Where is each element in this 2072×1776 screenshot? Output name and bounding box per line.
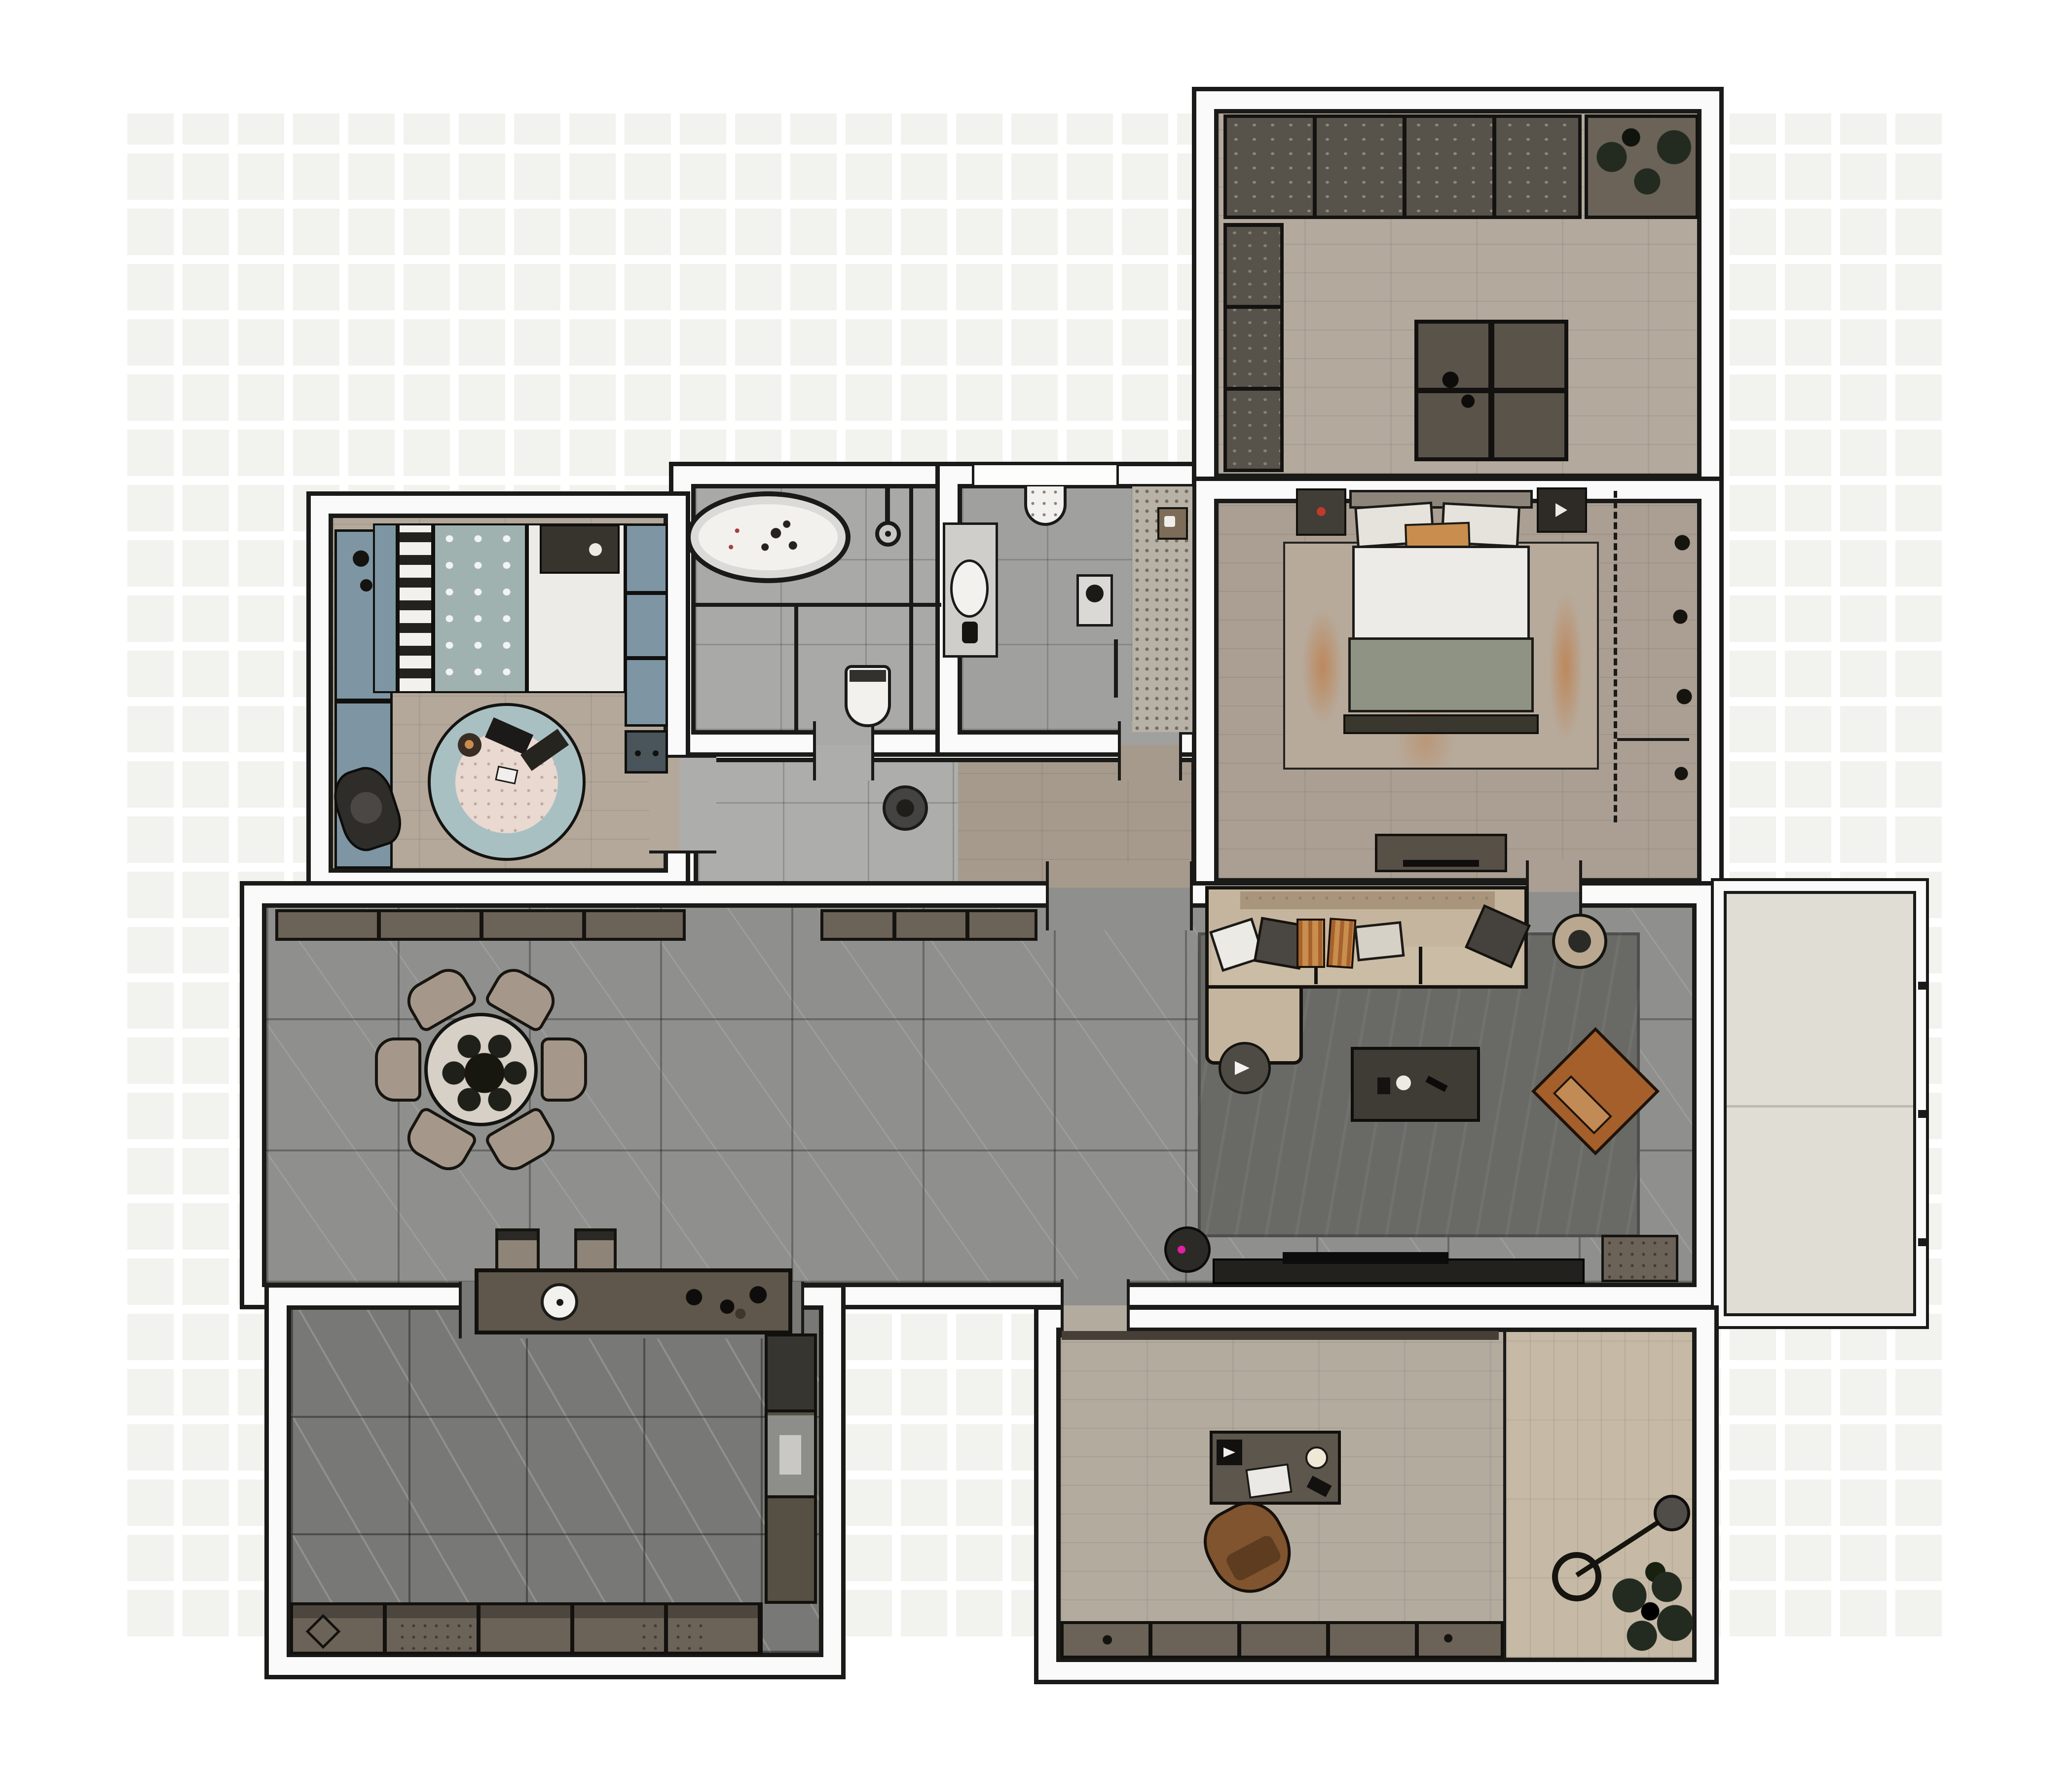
pouf[interactable]	[1219, 1042, 1271, 1094]
round-dining-table[interactable]	[424, 1013, 538, 1126]
potted-plant[interactable]	[1598, 1553, 1702, 1659]
tv-screen	[1283, 1252, 1448, 1264]
shower-head-icon	[875, 521, 901, 547]
sideboard-right[interactable]	[820, 909, 1037, 941]
tray-cup	[589, 543, 602, 556]
side-table-plant	[1568, 930, 1591, 953]
cabinet-speckle-2	[638, 1620, 703, 1650]
coffee-cup	[1396, 1075, 1411, 1090]
kitchen-island[interactable]	[475, 1268, 792, 1334]
media-cabinet[interactable]	[1601, 1235, 1678, 1282]
bed-duvet[interactable]	[1352, 546, 1530, 640]
toy-round	[458, 733, 481, 757]
wall-art-circle	[1086, 585, 1104, 602]
stool-back	[498, 1231, 537, 1240]
sofa-back-rail	[1240, 891, 1495, 909]
wc-vanity[interactable]	[943, 522, 998, 658]
pillow-offwhite	[1354, 921, 1405, 962]
vanity-faucet-icon	[962, 622, 978, 643]
bedroom-tv	[1403, 860, 1479, 867]
closet-side-cabinets[interactable]	[1223, 223, 1284, 472]
lamp-light	[1223, 1447, 1235, 1457]
pillow-orange-2	[1327, 918, 1357, 969]
wardrobe-dashed-line	[1614, 491, 1617, 822]
office-desk[interactable]	[1210, 1431, 1341, 1505]
kids-bed-tray	[540, 524, 620, 574]
desk-lamp-icon	[1217, 1440, 1242, 1465]
coffee-table[interactable]	[1351, 1047, 1480, 1122]
vanity-basin	[950, 559, 989, 618]
kids-dresser[interactable]	[625, 730, 668, 774]
wc-wall-art	[1076, 574, 1113, 627]
bed-foot-bench[interactable]	[1343, 714, 1539, 734]
nightstand-right[interactable]	[1537, 487, 1587, 533]
bath-partition-horizontal	[695, 603, 941, 607]
wc-wall-niche	[972, 463, 1119, 487]
railing-post-2	[1918, 1110, 1926, 1118]
kids-bed-striped-pillow	[398, 523, 433, 693]
shower-head-dot	[885, 531, 891, 537]
railing-post-3	[1918, 1238, 1926, 1246]
island-dish-zone	[672, 1278, 782, 1326]
bath-partition-vertical	[794, 603, 798, 732]
island-sink	[541, 1283, 578, 1321]
column-oven	[768, 1415, 814, 1498]
kids-bed-side-panel	[373, 523, 398, 693]
side-table-round[interactable]	[1552, 914, 1607, 969]
laptop	[1245, 1463, 1292, 1499]
toy-dot	[465, 740, 474, 749]
hob-diamond-icon	[306, 1614, 341, 1649]
column-fridge	[768, 1336, 814, 1412]
kids-bed-dotted-duvet[interactable]	[433, 523, 527, 693]
closet-plant-shelf[interactable]	[1585, 114, 1699, 219]
stool-back	[577, 1231, 614, 1240]
sink-drain	[556, 1299, 563, 1306]
book	[1377, 1077, 1390, 1094]
wardrobe-clothes-blobs	[1672, 513, 1692, 809]
railing-post-1	[1918, 982, 1926, 990]
remote	[1425, 1075, 1447, 1092]
balcony-floor-seam	[1727, 1105, 1913, 1108]
oven-tray	[779, 1435, 801, 1475]
desk-round-light	[1305, 1446, 1328, 1469]
wc-shelf-item	[1157, 507, 1188, 540]
oval-bathtub[interactable]	[686, 491, 851, 583]
dining-chair-east[interactable]	[541, 1037, 587, 1102]
office-sideboard[interactable]	[1061, 1621, 1504, 1659]
chair-seat	[346, 788, 386, 828]
bed-throw-blanket	[1348, 637, 1534, 712]
nightstand-left[interactable]	[1296, 488, 1346, 536]
dresser-knob-1	[635, 750, 641, 756]
pouf-wedge	[1235, 1061, 1250, 1075]
bath-glass-wall	[909, 486, 913, 732]
wc-door-leaf[interactable]	[1114, 639, 1118, 698]
sideboard-left[interactable]	[275, 909, 686, 941]
shelf-towel	[1164, 516, 1175, 527]
toilet-bath[interactable]	[845, 665, 891, 727]
room-balcony	[1724, 891, 1916, 1316]
cabinet-speckle-1	[397, 1620, 476, 1650]
opening-bathroom-door[interactable]	[813, 721, 874, 780]
toilet-tank	[850, 670, 886, 682]
shower-pipe	[885, 486, 890, 525]
bedroom-tv-console[interactable]	[1375, 834, 1507, 872]
robot-vacuum[interactable]	[1164, 1226, 1211, 1273]
opening-office-door[interactable]	[1061, 1279, 1130, 1337]
drain-center	[896, 799, 914, 817]
dresser-knob-2	[653, 750, 659, 756]
desk-phone	[1306, 1476, 1332, 1497]
floor-plan-canvas	[0, 0, 2072, 1776]
opening-hall-to-living	[1046, 861, 1193, 930]
arc-lamp-base[interactable]	[1552, 1552, 1601, 1601]
play-icon	[1555, 503, 1567, 517]
pillow-orange-1	[1296, 919, 1325, 968]
closet-wall-cabinets[interactable]	[1223, 114, 1582, 219]
kids-wardrobe[interactable]	[625, 523, 668, 727]
floor-drain-disc	[883, 785, 928, 831]
kitchen-tall-column[interactable]	[765, 1333, 817, 1604]
vacuum-indicator	[1178, 1246, 1185, 1254]
closet-center-island[interactable]	[1414, 320, 1568, 461]
dining-chair-west[interactable]	[375, 1037, 421, 1102]
wall-filler	[1056, 1280, 1697, 1334]
speaker-red-dot-icon	[1317, 507, 1326, 516]
chair-seat	[1224, 1533, 1283, 1583]
kitchen-base-cabinets[interactable]	[290, 1602, 763, 1655]
office-top-rail	[1062, 1331, 1499, 1340]
arc-lamp-head	[1654, 1495, 1690, 1531]
